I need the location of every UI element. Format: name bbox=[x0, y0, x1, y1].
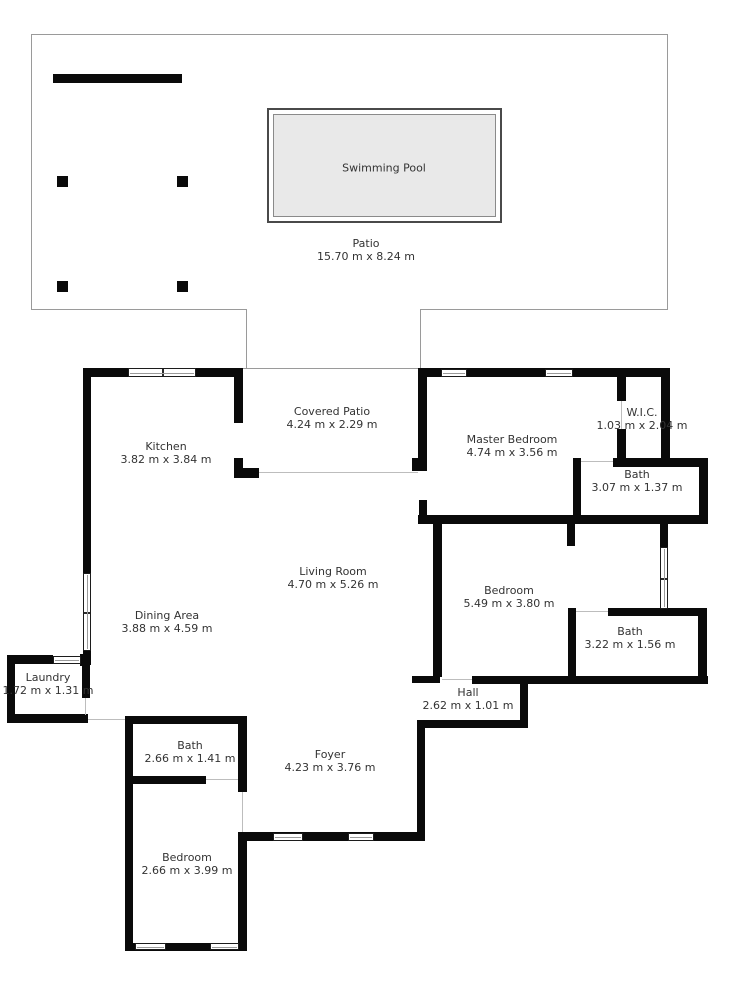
room-name: Kitchen bbox=[121, 440, 212, 453]
room-label-kitchen: Kitchen 3.82 m x 3.84 m bbox=[121, 440, 212, 466]
exterior-line bbox=[88, 719, 125, 720]
room-dims: 15.70 m x 8.24 m bbox=[317, 250, 415, 263]
wall bbox=[613, 458, 707, 467]
wall bbox=[125, 776, 206, 784]
patio-post bbox=[57, 281, 68, 292]
room-label-bath-bottom: Bath 2.66 m x 1.41 m bbox=[145, 739, 236, 765]
door-opening bbox=[242, 792, 243, 832]
window bbox=[545, 369, 573, 377]
window bbox=[83, 573, 91, 651]
room-name: Bedroom bbox=[464, 584, 555, 597]
room-dims: 4.23 m x 3.76 m bbox=[285, 761, 376, 774]
room-label-patio: Patio 15.70 m x 8.24 m bbox=[317, 237, 415, 263]
room-dims: 2.62 m x 1.01 m bbox=[423, 699, 514, 712]
window bbox=[53, 656, 81, 664]
room-dims: 4.24 m x 2.29 m bbox=[287, 418, 378, 431]
room-dims: 3.82 m x 3.84 m bbox=[121, 453, 212, 466]
wall bbox=[238, 832, 247, 951]
wall bbox=[608, 608, 706, 616]
wall bbox=[125, 716, 247, 724]
pergola-beam bbox=[53, 74, 182, 83]
room-dims: 3.22 m x 1.56 m bbox=[585, 638, 676, 651]
room-label-bedroom-bottom: Bedroom 2.66 m x 3.99 m bbox=[142, 851, 233, 877]
room-name: Patio bbox=[317, 237, 415, 250]
room-name: Laundry bbox=[3, 671, 94, 684]
room-label-bedroom-right: Bedroom 5.49 m x 3.80 m bbox=[464, 584, 555, 610]
wall bbox=[617, 429, 626, 460]
room-label-covered-patio: Covered Patio 4.24 m x 2.29 m bbox=[287, 405, 378, 431]
patio-post bbox=[177, 281, 188, 292]
room-name: W.I.C. bbox=[597, 406, 688, 419]
room-dims: 2.66 m x 1.41 m bbox=[145, 752, 236, 765]
room-label-wic: W.I.C. 1.03 m x 2.04 m bbox=[597, 406, 688, 432]
floor-plan: Swimming Pool Patio 15.70 m x 8.24 m Cov… bbox=[0, 0, 732, 1000]
room-name: Bath bbox=[585, 625, 676, 638]
room-name: Hall bbox=[423, 686, 514, 699]
room-dims: 3.07 m x 1.37 m bbox=[592, 481, 683, 494]
room-label-master-bath: Bath 3.07 m x 1.37 m bbox=[592, 468, 683, 494]
room-dims: 5.49 m x 3.80 m bbox=[464, 597, 555, 610]
room-label-foyer: Foyer 4.23 m x 3.76 m bbox=[285, 748, 376, 774]
room-label-hall: Hall 2.62 m x 1.01 m bbox=[423, 686, 514, 712]
window bbox=[660, 547, 668, 609]
room-label-bath-right: Bath 3.22 m x 1.56 m bbox=[585, 625, 676, 651]
room-label-swimming-pool: Swimming Pool bbox=[342, 162, 426, 175]
wall bbox=[417, 728, 425, 840]
patio-post bbox=[177, 176, 188, 187]
wall bbox=[418, 368, 427, 458]
wall bbox=[660, 523, 668, 548]
wall bbox=[417, 720, 528, 728]
room-dims: 2.66 m x 3.99 m bbox=[142, 864, 233, 877]
door-opening bbox=[85, 698, 86, 715]
wall bbox=[567, 523, 575, 546]
patio-outline-bottom-left bbox=[31, 309, 246, 310]
covered-patio-north-line bbox=[243, 368, 420, 369]
room-name: Dining Area bbox=[122, 609, 213, 622]
wall bbox=[568, 608, 576, 684]
door-opening bbox=[206, 779, 238, 780]
wall bbox=[7, 655, 53, 664]
wall bbox=[698, 608, 707, 684]
wall bbox=[617, 377, 626, 401]
room-dims: 4.70 m x 5.26 m bbox=[288, 578, 379, 591]
room-name: Covered Patio bbox=[287, 405, 378, 418]
patio-post bbox=[57, 176, 68, 187]
wall bbox=[234, 458, 243, 478]
wall bbox=[472, 676, 708, 684]
wall bbox=[573, 458, 581, 524]
window bbox=[135, 943, 166, 950]
room-label-living-room: Living Room 4.70 m x 5.26 m bbox=[288, 565, 379, 591]
window bbox=[128, 368, 196, 377]
window bbox=[348, 833, 374, 841]
room-name: Master Bedroom bbox=[467, 433, 558, 446]
room-label-dining-area: Dining Area 3.88 m x 4.59 m bbox=[122, 609, 213, 635]
window bbox=[273, 833, 303, 841]
room-dims: 1.72 m x 1.31 m bbox=[3, 684, 94, 697]
room-label-master-bedroom: Master Bedroom 4.74 m x 3.56 m bbox=[467, 433, 558, 459]
wall bbox=[412, 458, 427, 471]
room-dims: 1.03 m x 2.04 m bbox=[597, 419, 688, 432]
room-name: Living Room bbox=[288, 565, 379, 578]
wall bbox=[419, 500, 427, 516]
room-name: Bedroom bbox=[142, 851, 233, 864]
wall bbox=[125, 716, 133, 951]
door-opening bbox=[576, 611, 608, 612]
door-opening bbox=[581, 461, 613, 462]
wall bbox=[699, 458, 708, 524]
wall bbox=[412, 676, 440, 683]
wall bbox=[234, 368, 243, 423]
window bbox=[441, 369, 467, 377]
wall bbox=[433, 523, 442, 677]
covered-patio-side-left bbox=[246, 309, 247, 369]
room-name: Foyer bbox=[285, 748, 376, 761]
window bbox=[210, 943, 239, 950]
room-dims: 4.74 m x 3.56 m bbox=[467, 446, 558, 459]
patio-outline-left bbox=[31, 34, 32, 310]
room-dims: 3.88 m x 4.59 m bbox=[122, 622, 213, 635]
wall bbox=[7, 714, 88, 723]
wall bbox=[238, 716, 247, 792]
room-label-laundry: Laundry 1.72 m x 1.31 m bbox=[3, 671, 94, 697]
room-name: Bath bbox=[592, 468, 683, 481]
room-name: Bath bbox=[145, 739, 236, 752]
covered-patio-south-line bbox=[252, 472, 418, 473]
patio-outline-top bbox=[31, 34, 668, 35]
wall bbox=[243, 468, 259, 478]
patio-outline-bottom-right bbox=[420, 309, 668, 310]
covered-patio-side-right bbox=[420, 309, 421, 369]
door-opening bbox=[442, 679, 472, 680]
patio-outline-right bbox=[667, 34, 668, 310]
room-name: Swimming Pool bbox=[342, 162, 426, 175]
